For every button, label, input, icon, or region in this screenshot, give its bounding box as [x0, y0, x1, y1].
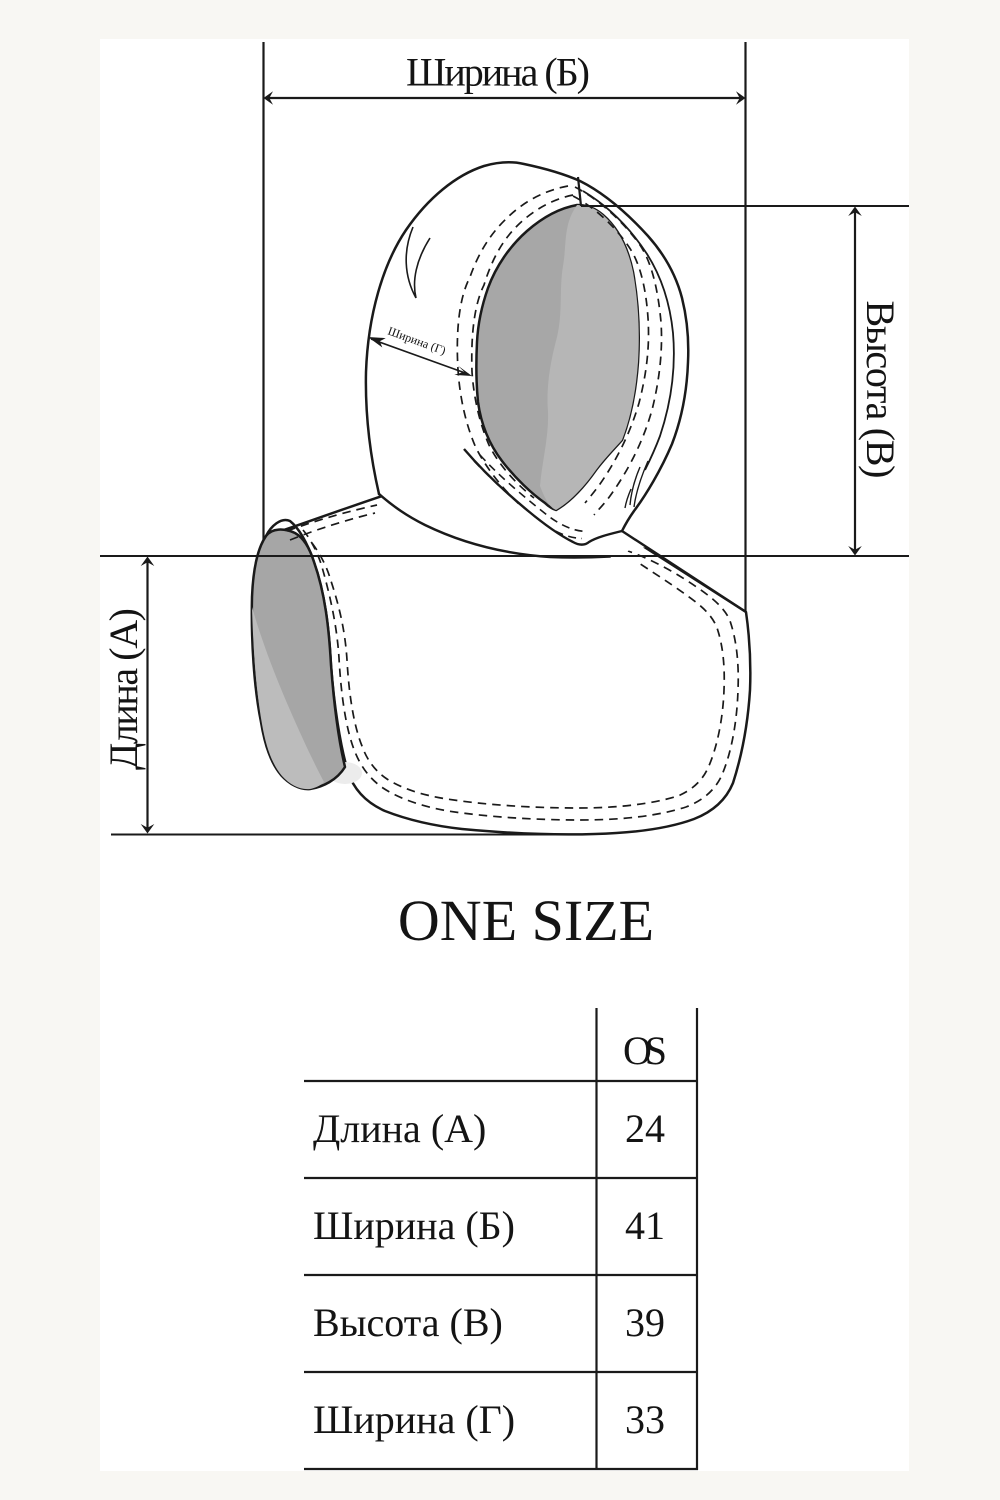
svg-text:24: 24 — [625, 1106, 665, 1151]
svg-text:Ширина (Б): Ширина (Б) — [313, 1203, 515, 1248]
svg-text:41: 41 — [625, 1203, 665, 1248]
svg-text:39: 39 — [625, 1300, 665, 1345]
svg-text:Высота (В): Высота (В) — [313, 1300, 503, 1345]
svg-text:ONE SIZE: ONE SIZE — [398, 888, 654, 953]
svg-text:33: 33 — [625, 1397, 665, 1442]
svg-text:OS: OS — [623, 1028, 667, 1073]
svg-text:Длина (А): Длина (А) — [101, 608, 146, 770]
svg-text:Ширина (Г): Ширина (Г) — [313, 1397, 515, 1442]
svg-text:Высота (В): Высота (В) — [858, 301, 903, 479]
svg-text:Ширина (Б): Ширина (Б) — [406, 50, 590, 95]
svg-text:Длина (А): Длина (А) — [313, 1106, 486, 1151]
